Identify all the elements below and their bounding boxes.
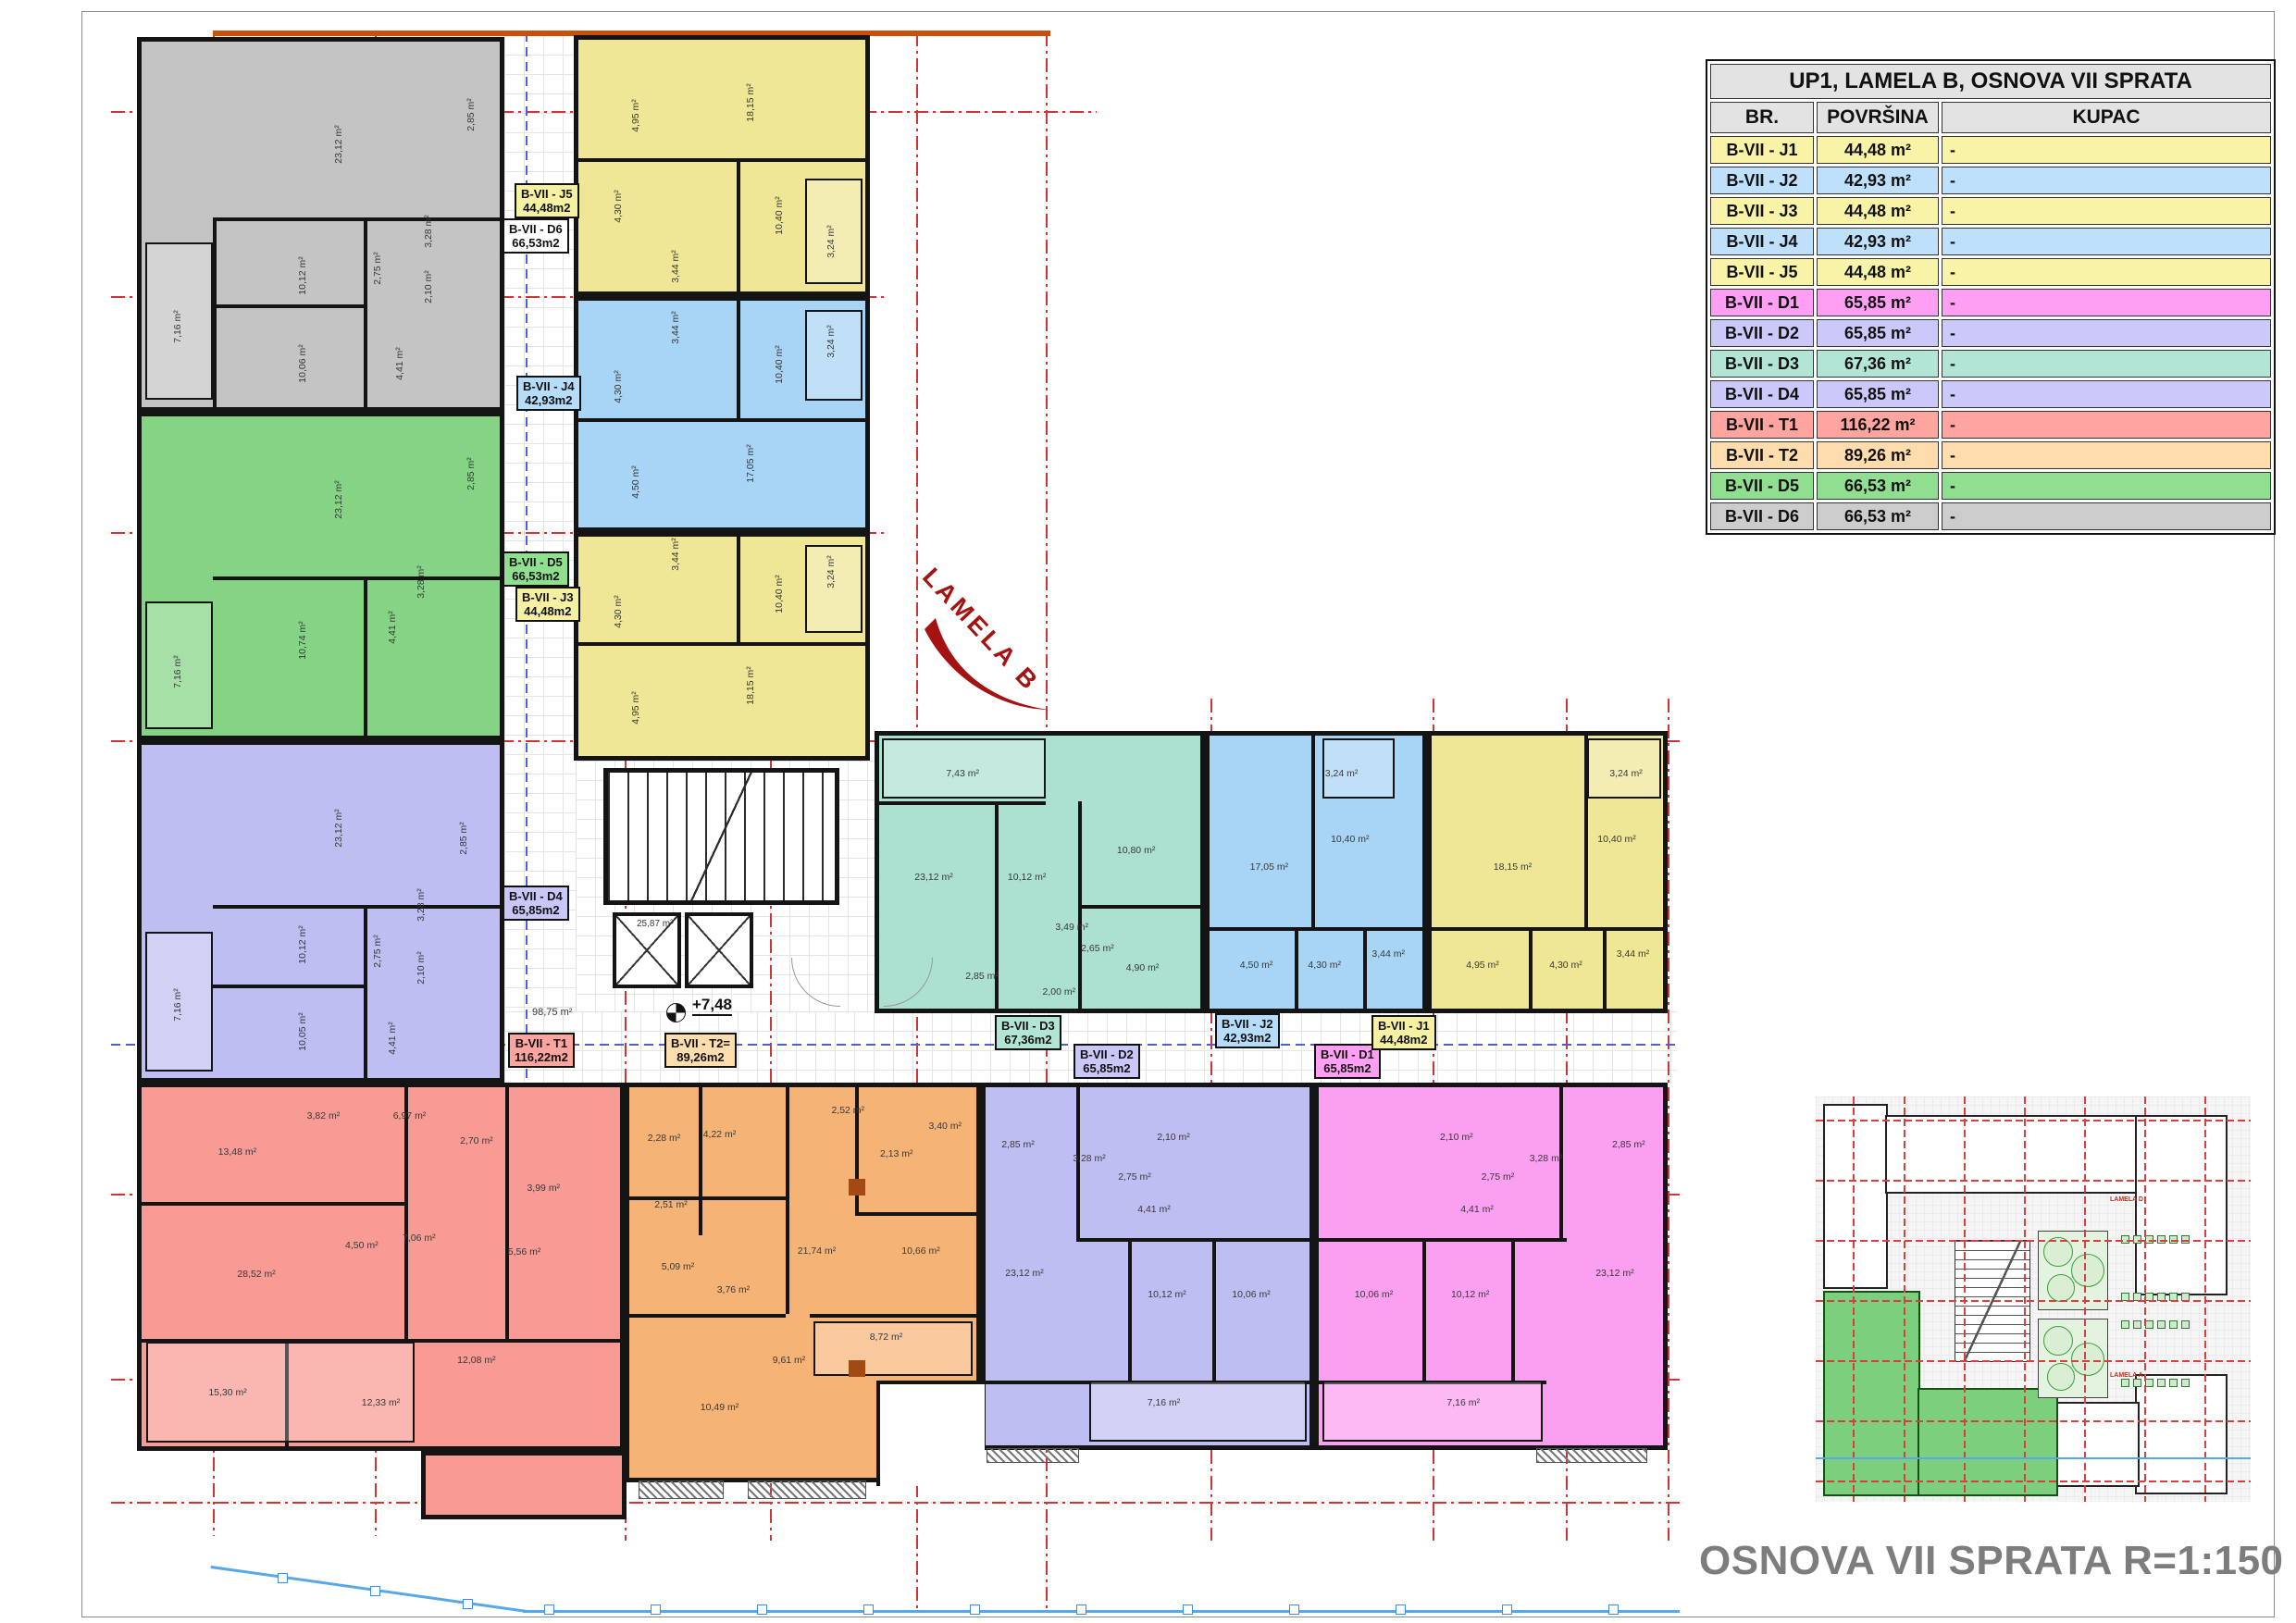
room-area-label: 12,33 m²	[362, 1397, 400, 1408]
apartment-j2: 3,24 m²10,40 m²17,05 m²4,50 m²4,30 m²3,4…	[1205, 731, 1427, 1013]
interior-wall	[786, 1087, 789, 1314]
boundary-marker	[544, 1604, 554, 1615]
site-axis	[1904, 1096, 1905, 1502]
balcony	[1322, 1381, 1543, 1442]
table-cell: -	[1942, 441, 2271, 469]
room-area-label: 3,44 m²	[670, 250, 681, 283]
room-area-label: 4,41 m²	[1460, 1204, 1494, 1215]
room-area-label: 21,74 m²	[798, 1245, 836, 1257]
apartment-j5: 18,15 m²4,95 m²4,30 m²10,40 m²3,44 m²3,2…	[574, 35, 870, 296]
room-area-label: 10,40 m²	[774, 197, 785, 235]
table-cell: B-VII - D5	[1710, 472, 1814, 500]
planter-square	[2121, 1379, 2129, 1387]
room-area-label: 4,41 m²	[387, 1022, 398, 1055]
site-planters	[1816, 1096, 2251, 1502]
room-area-label: 3,82 m²	[307, 1110, 341, 1121]
planter-square	[2133, 1320, 2141, 1329]
interior-wall	[879, 801, 1046, 805]
room-area-label: 5,09 m²	[662, 1261, 695, 1272]
room-area-label: 2,85 m²	[458, 822, 469, 855]
table-row: B-VII - D666,53 m²-	[1710, 502, 2271, 530]
table-row: B-VII - D367,36 m²-	[1710, 350, 2271, 378]
drawing-sheet: +7,48 98,75 m² 25,87 m² LAMELA B 23,12 m…	[0, 0, 2296, 1623]
room-area-label: 2,65 m²	[1081, 943, 1114, 954]
room-area-label: 17,05 m²	[1250, 861, 1288, 873]
drawing-title: OSNOVA VII SPRATA R=1:150	[1699, 1538, 2254, 1584]
site-boundary-line	[211, 1566, 527, 1612]
room-area-label: 4,95 m²	[630, 99, 641, 132]
boundary-marker	[1183, 1604, 1193, 1615]
room-area-label: 12,08 m²	[457, 1355, 495, 1366]
room-area-label: 4,30 m²	[613, 190, 624, 223]
planter-square	[2181, 1379, 2190, 1387]
interior-wall	[213, 304, 364, 308]
room-area-label: 10,66 m²	[901, 1245, 939, 1257]
balcony-hatch	[639, 1481, 724, 1499]
balcony-hatch	[1536, 1448, 1647, 1463]
table-row: B-VII - J144,48 m²-	[1710, 136, 2271, 164]
staircase	[603, 768, 839, 905]
site-boundary	[1816, 1457, 2251, 1459]
room-area-label: 3,24 m²	[825, 325, 837, 358]
table-cell: -	[1942, 472, 2271, 500]
table-cell: -	[1942, 411, 2271, 439]
room-area-label: 4,41 m²	[1137, 1204, 1171, 1215]
interior-wall	[213, 985, 364, 988]
site-axis	[1816, 1120, 2251, 1121]
room-area-label: 2,70 m²	[460, 1135, 493, 1146]
room-area-label: 3,44 m²	[1617, 948, 1650, 960]
room-area-label: 18,15 m²	[745, 666, 756, 704]
table-cell: B-VII - D4	[1710, 380, 1814, 408]
planter-square	[2169, 1320, 2178, 1329]
room-area-label: 2,75 m²	[1482, 1171, 1515, 1183]
room-area-label: 3,24 m²	[1325, 768, 1359, 779]
room-area-label: 17,05 m²	[745, 445, 756, 483]
column-header-povrsina: POVRŠINA	[1817, 102, 1939, 133]
boundary-marker	[651, 1604, 661, 1615]
room-area-label: 4,50 m²	[630, 465, 641, 499]
table-cell: 66,53 m²	[1817, 472, 1939, 500]
room-area-label: 5,56 m²	[508, 1246, 541, 1258]
interior-wall	[1212, 1238, 1216, 1381]
room-area-label: 2,75 m²	[1118, 1171, 1151, 1183]
interior-wall	[364, 576, 367, 737]
interior-wall	[142, 1202, 404, 1206]
room-area-label: 2,10 m²	[1157, 1132, 1190, 1143]
site-axis	[1816, 1300, 2251, 1302]
room-area-label: 10,80 m²	[1117, 845, 1155, 856]
site-axis	[2144, 1096, 2146, 1502]
room-area-label: 10,40 m²	[1597, 834, 1635, 845]
legend-table: UP1, LAMELA B, OSNOVA VII SPRATA BR. POV…	[1706, 59, 2276, 535]
room-area-label: 3,44 m²	[670, 312, 681, 345]
table-row: B-VII - D165,85 m²-	[1710, 289, 2271, 316]
balcony-hatch	[987, 1448, 1079, 1463]
table-cell: -	[1942, 502, 2271, 530]
site-axis	[2084, 1096, 2086, 1502]
apartment-label-t2: B-VII - T2=89,26m2	[664, 1033, 737, 1068]
room-area-label: 2,85 m²	[465, 98, 477, 131]
table-cell: B-VII - D3	[1710, 350, 1814, 378]
table-row: B-VII - T289,26 m²-	[1710, 441, 2271, 469]
apartment-j4: 10,40 m²3,44 m²4,30 m²17,05 m²4,50 m²3,2…	[574, 296, 870, 532]
room-area-label: 7,06 m²	[403, 1233, 436, 1244]
interior-wall	[364, 905, 367, 1078]
room-area-label: 2,85 m²	[1001, 1139, 1035, 1150]
table-cell: B-VII - D1	[1710, 289, 1814, 316]
room-area-label: 8,72 m²	[870, 1332, 903, 1343]
room-area-label: 2,10 m²	[1440, 1132, 1473, 1143]
apartment-label-j1: B-VII - J144,48m2	[1371, 1015, 1436, 1050]
room-area-label: 4,95 m²	[1466, 960, 1499, 971]
room-area-label: 10,06 m²	[1355, 1289, 1393, 1300]
room-area-label: 3,28 m²	[423, 216, 434, 249]
table-cell: B-VII - J5	[1710, 258, 1814, 286]
room-area-label: 2,00 m²	[1043, 986, 1076, 997]
interior-wall	[1076, 1238, 1309, 1242]
table-row: B-VII - J544,48 m²-	[1710, 258, 2271, 286]
interior-wall	[1295, 927, 1298, 1010]
site-plan-thumbnail: LAMELA D LAMELA A	[1816, 1096, 2251, 1502]
boundary-marker	[463, 1599, 473, 1609]
room-area-label: 2,85 m²	[465, 457, 477, 490]
room-area-label: 4,30 m²	[1308, 960, 1341, 971]
table-row: B-VII - D465,85 m²-	[1710, 380, 2271, 408]
room-area-label: 23,12 m²	[1005, 1268, 1043, 1279]
table-cell: 65,85 m²	[1817, 319, 1939, 347]
room-area-label: 7,16 m²	[172, 310, 183, 343]
axis-line-horizontal	[111, 1502, 1680, 1504]
apartment-label-d6: B-VII - D666,53m2	[503, 218, 569, 254]
interior-wall	[213, 905, 500, 909]
boundary-marker	[1502, 1604, 1512, 1615]
planter-square	[2145, 1320, 2153, 1329]
room-area-label: 10,40 m²	[1331, 834, 1369, 845]
planter-square	[2133, 1379, 2141, 1387]
room-area-label: 2,85 m²	[1612, 1139, 1645, 1150]
balcony-hatch	[748, 1481, 866, 1499]
boundary-marker	[863, 1604, 874, 1615]
table-cell: B-VII - D2	[1710, 319, 1814, 347]
table-row: B-VII - J344,48 m²-	[1710, 197, 2271, 225]
interior-wall	[629, 1196, 786, 1200]
room-area-label: 23,12 m²	[333, 480, 344, 518]
table-cell: -	[1942, 258, 2271, 286]
room-area-label: 15,30 m²	[208, 1387, 246, 1398]
table-cell: B-VII - J2	[1710, 167, 1814, 194]
apartment-d1: 2,85 m²23,12 m²3,28 m²2,75 m²2,10 m²4,41…	[1314, 1083, 1668, 1450]
room-area-label: 10,40 m²	[774, 575, 785, 613]
table-cell: B-VII - D6	[1710, 502, 1814, 530]
axis-line-vertical	[1668, 699, 1669, 1541]
interior-wall	[404, 1087, 408, 1339]
table-cell: B-VII - J1	[1710, 136, 1814, 164]
room-area-label: 3,99 m²	[527, 1183, 560, 1194]
floor-plan: +7,48 98,75 m² 25,87 m² LAMELA B 23,12 m…	[0, 0, 1694, 1623]
table-cell: -	[1942, 380, 2271, 408]
room-area-label: 2,13 m²	[880, 1148, 913, 1159]
room-area-label: 3,28 m²	[1530, 1153, 1563, 1164]
room-area-label: 28,52 m²	[237, 1269, 275, 1280]
section-marker	[849, 1360, 865, 1377]
room-area-label: 3,49 m²	[1055, 922, 1088, 933]
room-area-label: 7,16 m²	[172, 655, 183, 688]
table-cell: 65,85 m²	[1817, 289, 1939, 316]
room-area-label: 4,30 m²	[613, 370, 624, 403]
site-axis	[1816, 1420, 2251, 1422]
interior-wall	[505, 1087, 509, 1339]
table-row: B-VII - J242,93 m²-	[1710, 167, 2271, 194]
lamela-b-marker: LAMELA B	[921, 555, 1124, 740]
apartment-label-d3: B-VII - D367,36m2	[995, 1015, 1061, 1050]
table-cell: B-VII - J4	[1710, 228, 1814, 255]
room-area-label: 10,12 m²	[1008, 872, 1046, 883]
room-area-label: 2,28 m²	[648, 1133, 681, 1144]
site-axis	[1816, 1481, 2251, 1482]
legend-title: UP1, LAMELA B, OSNOVA VII SPRATA	[1710, 64, 2271, 99]
interior-wall	[578, 642, 865, 646]
table-cell: -	[1942, 167, 2271, 194]
apartment-label-j5: B-VII - J544,48m2	[515, 183, 579, 218]
room-area-label: 7,16 m²	[1446, 1397, 1480, 1408]
apartment-t1-annex	[421, 1451, 627, 1519]
boundary-marker	[278, 1573, 288, 1583]
interior-wall	[213, 217, 217, 407]
balcony	[813, 1321, 974, 1376]
interior-wall	[737, 537, 740, 642]
room-area-label: 2,75 m²	[372, 935, 383, 968]
planter-square	[2145, 1379, 2153, 1387]
table-cell: B-VII - T1	[1710, 411, 1814, 439]
level-marker-icon	[666, 1003, 686, 1022]
apartment-label-t1: B-VII - T1116,22m2	[508, 1033, 575, 1068]
table-row: B-VII - D265,85 m²-	[1710, 319, 2271, 347]
room-area-label: 2,52 m²	[831, 1105, 864, 1116]
room-area-label: 18,15 m²	[1494, 861, 1532, 873]
interior-wall	[1078, 905, 1200, 909]
site-axis	[1816, 1240, 2251, 1242]
apartment-label-j4: B-VII - J442,93m2	[516, 376, 581, 411]
apartment-d6: 23,12 m²2,85 m²3,28 m²10,12 m²2,75 m²2,1…	[137, 37, 504, 412]
table-cell: -	[1942, 136, 2271, 164]
interior-wall	[1128, 1238, 1132, 1381]
room-area-label: 4,41 m²	[387, 611, 398, 644]
apartment-d2: 2,85 m²23,12 m²3,28 m²2,75 m²2,10 m²4,41…	[981, 1083, 1314, 1450]
boundary-marker	[1289, 1604, 1299, 1615]
balcony	[146, 1342, 415, 1443]
room-area-label: 9,61 m²	[773, 1355, 806, 1366]
room-area-label: 4,22 m²	[703, 1129, 737, 1140]
table-cell: 89,26 m²	[1817, 441, 1939, 469]
room-area-label: 2,51 m²	[654, 1199, 688, 1210]
site-axis	[2204, 1096, 2206, 1502]
table-row: B-VII - J442,93 m²-	[1710, 228, 2271, 255]
room-area-label: 18,15 m²	[745, 83, 756, 121]
table-cell: 66,53 m²	[1817, 502, 1939, 530]
corridor-area-label: 98,75 m²	[532, 1007, 572, 1018]
table-cell: 44,48 m²	[1817, 258, 1939, 286]
courtyard-notch	[876, 1381, 985, 1486]
table-cell: -	[1942, 350, 2271, 378]
room-area-label: 10,74 m²	[297, 621, 308, 659]
planter-square	[2121, 1320, 2129, 1329]
room-area-label: 4,30 m²	[1549, 960, 1582, 971]
interior-wall	[364, 217, 367, 407]
site-label-lamela-a: LAMELA A	[2110, 1372, 2143, 1379]
table-row: B-VII - D566,53 m²-	[1710, 472, 2271, 500]
room-area-label: 3,44 m²	[1371, 948, 1405, 960]
interior-wall	[1603, 927, 1607, 1010]
interior-wall	[213, 576, 500, 580]
room-area-label: 3,24 m²	[825, 225, 837, 258]
interior-wall	[1319, 1238, 1567, 1242]
site-axis	[1853, 1096, 1855, 1502]
apartment-d4: 23,12 m²2,85 m²3,28 m²10,12 m²2,75 m²2,1…	[137, 740, 504, 1083]
site-label-lamela-d: LAMELA D	[2110, 1196, 2143, 1203]
room-area-label: 2,10 m²	[416, 951, 427, 985]
room-area-label: 10,06 m²	[1232, 1289, 1270, 1300]
interior-wall	[578, 158, 865, 162]
interior-wall	[737, 158, 740, 291]
table-cell: 44,48 m²	[1817, 136, 1939, 164]
table-cell: 65,85 m²	[1817, 380, 1939, 408]
boundary-marker	[757, 1604, 767, 1615]
room-area-label: 3,24 m²	[825, 555, 837, 588]
interior-wall	[1529, 927, 1533, 1010]
room-area-label: 7,16 m²	[172, 988, 183, 1022]
table-cell: -	[1942, 319, 2271, 347]
boundary-marker	[1396, 1604, 1406, 1615]
column-header-kupac: KUPAC	[1942, 102, 2271, 133]
interior-wall	[213, 217, 500, 221]
table-cell: 116,22 m²	[1817, 411, 1939, 439]
room-area-label: 3,76 m²	[717, 1284, 751, 1295]
room-area-label: 10,12 m²	[297, 925, 308, 963]
planter-square	[2169, 1379, 2178, 1387]
interior-wall	[1311, 736, 1315, 927]
site-axis	[1964, 1096, 1966, 1502]
room-area-label: 4,50 m²	[1240, 960, 1273, 971]
room-area-label: 13,48 m²	[218, 1146, 256, 1158]
room-area-label: 2,75 m²	[372, 252, 383, 285]
table-cell: 67,36 m²	[1817, 350, 1939, 378]
room-area-label: 10,06 m²	[297, 344, 308, 382]
interior-wall	[1363, 927, 1367, 1010]
room-area-label: 3,24 m²	[1609, 768, 1643, 779]
interior-wall	[1511, 1238, 1515, 1381]
apartment-label-j3: B-VII - J344,48m2	[515, 587, 580, 622]
table-cell: B-VII - J3	[1710, 197, 1814, 225]
room-area-label: 6,97 m²	[393, 1110, 427, 1121]
room-area-label: 4,95 m²	[630, 691, 641, 725]
room-area-label: 7,43 m²	[946, 768, 979, 779]
table-row: B-VII - T1116,22 m²-	[1710, 411, 2271, 439]
room-area-label: 2,85 m²	[965, 971, 999, 982]
apartment-t1: 13,48 m²3,82 m²6,97 m²2,70 m²3,99 m²28,5…	[137, 1083, 625, 1451]
apartment-label-d5: B-VII - D566,53m2	[503, 551, 569, 587]
room-area-label: 10,05 m²	[297, 1012, 308, 1050]
room-area-label: 2,10 m²	[423, 270, 434, 304]
room-area-label: 4,30 m²	[613, 595, 624, 628]
boundary-marker	[970, 1604, 980, 1615]
room-area-label: 4,50 m²	[345, 1240, 379, 1251]
interior-wall	[1422, 1238, 1426, 1381]
table-cell: -	[1942, 197, 2271, 225]
room-area-label: 10,40 m²	[774, 345, 785, 383]
room-area-label: 3,28 m²	[416, 888, 427, 922]
room-area-label: 23,12 m²	[914, 872, 952, 883]
planter-square	[2157, 1379, 2166, 1387]
apartment-label-d4: B-VII - D465,85m2	[503, 886, 569, 921]
room-area-label: 3,28 m²	[1073, 1153, 1106, 1164]
interior-wall	[855, 1212, 976, 1216]
table-cell: 42,93 m²	[1817, 167, 1939, 194]
table-cell: -	[1942, 289, 2271, 316]
elevator-shaft	[685, 912, 753, 988]
site-axis	[1816, 1360, 2251, 1362]
apartment-label-d2: B-VII - D265,85m2	[1074, 1044, 1140, 1079]
site-axis	[2024, 1096, 2026, 1502]
room-area-label: 3,28 m²	[416, 566, 427, 600]
apartment-j1: 3,24 m²10,40 m²18,15 m²4,95 m²4,30 m²3,4…	[1427, 731, 1668, 1013]
table-cell: B-VII - T2	[1710, 441, 1814, 469]
room-area-label: 10,12 m²	[1451, 1289, 1489, 1300]
apartment-label-j2: B-VII - J242,93m2	[1215, 1013, 1280, 1048]
room-area-label: 7,16 m²	[1148, 1397, 1181, 1408]
interior-wall	[578, 418, 865, 422]
room-area-label: 23,12 m²	[1595, 1268, 1633, 1279]
column-header-br: BR.	[1710, 102, 1814, 133]
table-cell: -	[1942, 228, 2271, 255]
table-cell: 42,93 m²	[1817, 228, 1939, 255]
room-area-label: 3,40 m²	[928, 1121, 962, 1132]
interior-wall	[629, 1314, 786, 1318]
planter-square	[2157, 1320, 2166, 1329]
room-area-label: 3,44 m²	[670, 538, 681, 571]
room-area-label: 23,12 m²	[333, 809, 344, 847]
interior-wall	[737, 301, 740, 418]
boundary-marker	[370, 1586, 380, 1596]
section-marker	[849, 1179, 865, 1196]
stair-area-label: 25,87 m²	[637, 919, 673, 929]
interior-wall	[699, 1087, 702, 1235]
interior-wall	[810, 1314, 976, 1318]
room-area-label: 10,49 m²	[701, 1402, 738, 1413]
apartment-d5: 23,12 m²2,85 m²3,28 m²10,74 m²4,41 m²7,1…	[137, 412, 504, 740]
boundary-marker	[1608, 1604, 1619, 1615]
room-area-label: 10,12 m²	[297, 256, 308, 294]
boundary-marker	[1076, 1604, 1086, 1615]
site-axis	[1816, 1180, 2251, 1182]
planter-square	[2181, 1320, 2190, 1329]
room-area-label: 10,12 m²	[1148, 1289, 1185, 1300]
interior-wall	[1210, 927, 1422, 931]
room-area-label: 4,90 m²	[1126, 962, 1160, 973]
balcony	[1089, 1381, 1307, 1442]
room-area-label: 23,12 m²	[333, 125, 344, 163]
level-marker-text: +7,48	[692, 996, 732, 1016]
apartment-j3: 10,40 m²3,24 m²4,30 m²3,44 m²18,15 m²4,9…	[574, 532, 870, 761]
table-cell: 44,48 m²	[1817, 197, 1939, 225]
interior-wall	[1432, 927, 1663, 931]
room-area-label: 4,41 m²	[394, 347, 405, 380]
